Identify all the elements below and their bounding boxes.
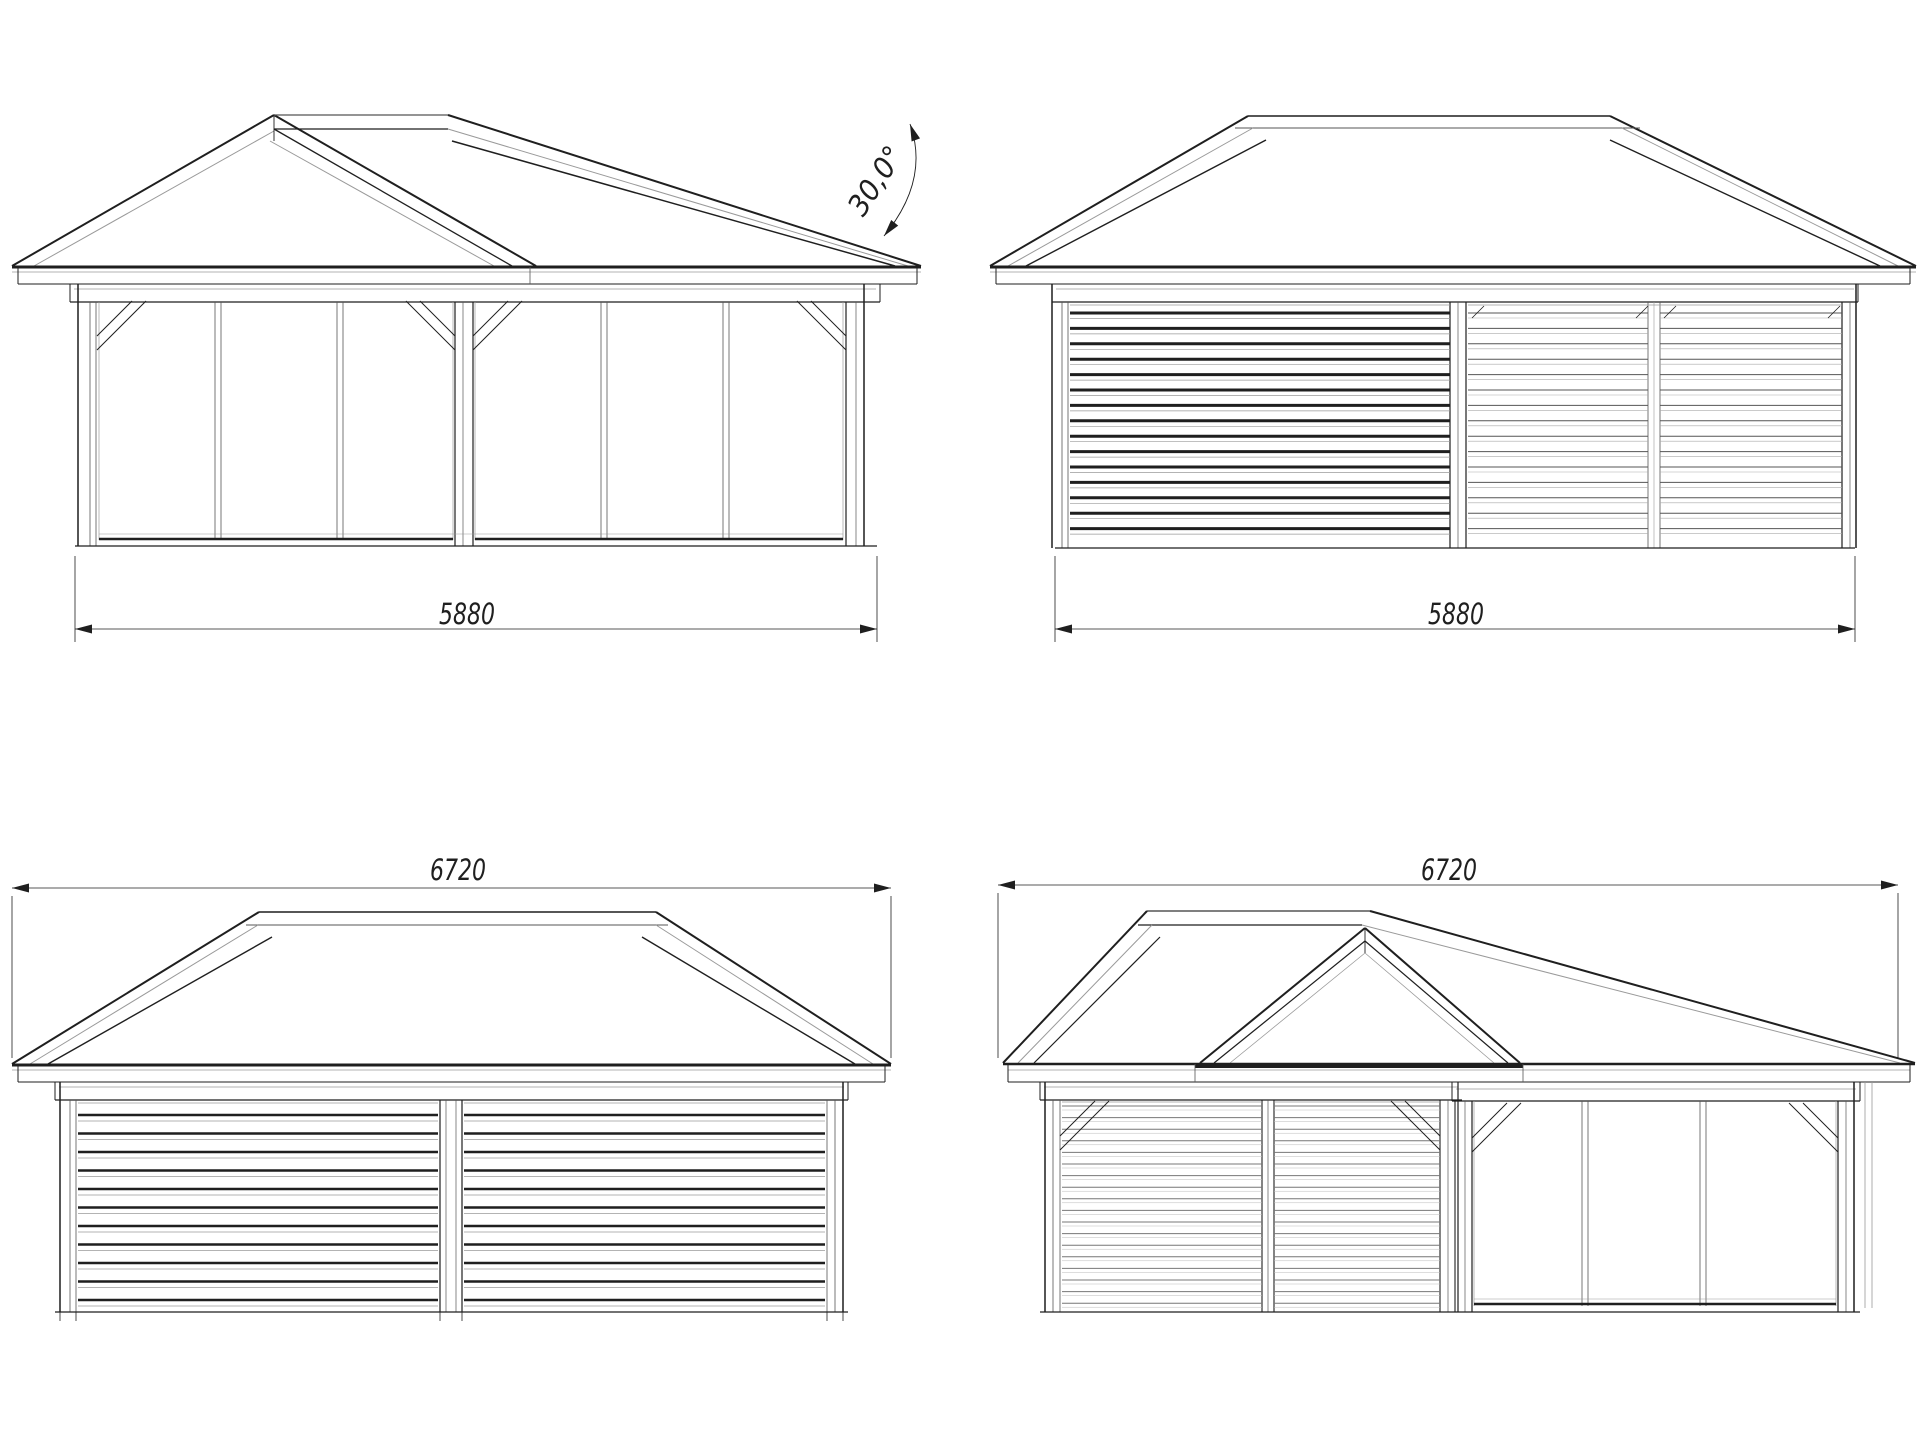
front-elevation-view: 5880 30,0° [12, 115, 921, 642]
side-b-walls [1040, 1082, 1872, 1312]
rear-slat-walls [55, 1082, 848, 1321]
side-elevation-b-view: 6720 [998, 853, 1915, 1312]
roof-angle-label: 30,0° [841, 139, 911, 221]
side-a-dimension-label: 5880 [1428, 597, 1484, 631]
side-b-roof [1003, 911, 1915, 1082]
side-a-roof [990, 116, 1916, 284]
rear-dimension [12, 884, 891, 1059]
rear-dimension-label: 6720 [430, 853, 486, 887]
side-a-slat-walls [1052, 284, 1858, 548]
rear-elevation-view: 6720 [12, 853, 891, 1321]
front-glazed-walls [70, 284, 880, 546]
front-dimension-label: 5880 [439, 597, 495, 631]
elevation-drawings-canvas: 5880 30,0° 5880 6720 6720 [0, 0, 1920, 1440]
front-roof [12, 115, 921, 284]
rear-roof [12, 912, 891, 1082]
side-b-dimension-label: 6720 [1421, 853, 1477, 887]
technical-drawing-sheet: 5880 30,0° 5880 6720 6720 [0, 0, 1920, 1440]
side-elevation-a-view: 5880 [990, 116, 1916, 642]
